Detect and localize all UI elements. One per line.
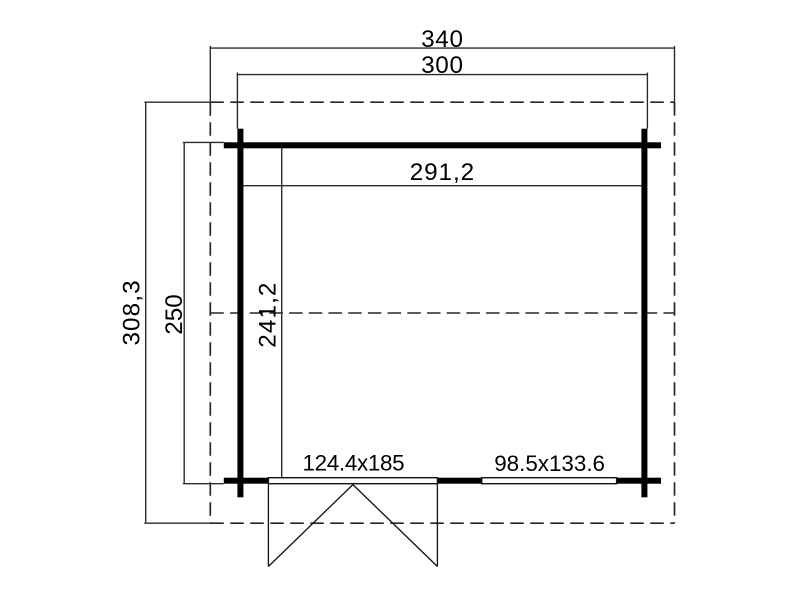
svg-text:291,2: 291,2 [410,159,475,186]
svg-text:98.5x133.6: 98.5x133.6 [494,451,605,476]
svg-text:250: 250 [161,294,188,335]
svg-text:124.4x185: 124.4x185 [302,451,404,476]
svg-text:300: 300 [421,52,464,79]
svg-text:241,2: 241,2 [255,281,282,347]
svg-text:308,3: 308,3 [119,279,146,345]
svg-text:340: 340 [421,26,464,53]
